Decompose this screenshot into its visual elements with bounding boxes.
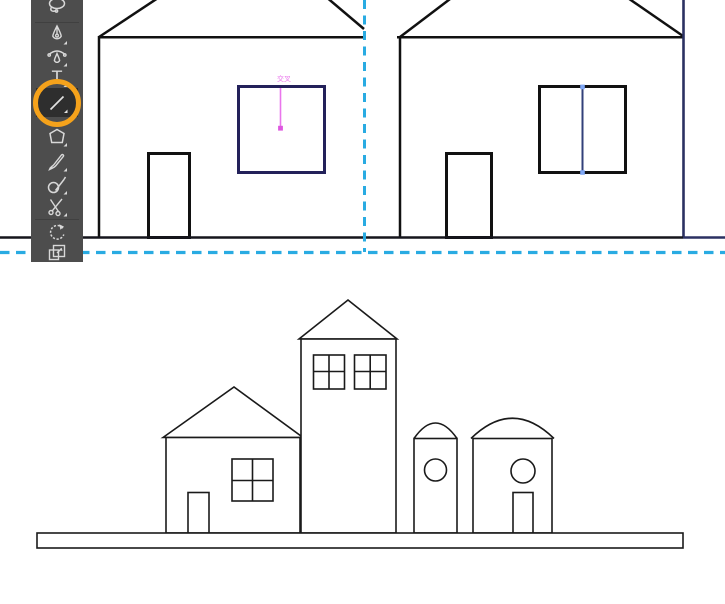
- rotate-tool[interactable]: [46, 222, 68, 244]
- silo-dome[interactable]: [414, 423, 457, 439]
- house-right-roof-slope-l[interactable]: [400, 0, 454, 37]
- tower-roof[interactable]: [299, 300, 397, 339]
- silo-body[interactable]: [414, 439, 457, 534]
- dome-house-round-window[interactable]: [511, 459, 535, 483]
- smart-guide-label: 交叉: [277, 74, 291, 83]
- base-platform[interactable]: [37, 533, 683, 548]
- illustrator-workspace: 交叉: [0, 0, 725, 604]
- anchor-dot-bottom: [580, 170, 585, 175]
- eraser-tool[interactable]: [46, 126, 68, 148]
- gable-house-roof[interactable]: [163, 387, 303, 438]
- paintbrush-tool[interactable]: [46, 151, 68, 173]
- toolbar-separator: [35, 219, 79, 220]
- house-left-door[interactable]: [149, 154, 190, 238]
- silo-round-window[interactable]: [425, 459, 447, 481]
- silo[interactable]: [414, 423, 457, 533]
- house-right-roof-slope-r[interactable]: [625, 0, 683, 36]
- tower[interactable]: [299, 300, 397, 533]
- house-right-door[interactable]: [447, 154, 492, 238]
- house-left-roof-slope-r[interactable]: [325, 0, 364, 29]
- gable-house[interactable]: [163, 387, 303, 533]
- artboard-tool[interactable]: [46, 242, 68, 262]
- toolbar: T: [31, 0, 83, 262]
- highlight-circle: [33, 79, 81, 127]
- dome-house-dome[interactable]: [471, 418, 554, 438]
- dome-house-door[interactable]: [513, 493, 533, 534]
- line-endpoint-dot: [278, 126, 283, 131]
- house-left-roof-slope-l[interactable]: [99, 0, 161, 37]
- town-illustration: [37, 300, 683, 548]
- curvature-tool[interactable]: [46, 46, 68, 68]
- toolbar-separator: [35, 22, 79, 23]
- dome-house[interactable]: [471, 418, 554, 533]
- house-right[interactable]: [397, 0, 683, 239]
- flyout-triangle: [64, 213, 68, 217]
- flyout-triangle: [64, 168, 68, 172]
- flyout-triangle: [64, 191, 68, 195]
- anchor-dot-top: [580, 85, 585, 90]
- flyout-triangle: [64, 143, 68, 147]
- gable-house-door[interactable]: [188, 493, 209, 534]
- lasso-tool[interactable]: [46, 0, 68, 19]
- blob-brush-tool[interactable]: [46, 174, 68, 196]
- flyout-triangle: [64, 41, 68, 45]
- pen-tool[interactable]: [46, 24, 68, 46]
- canvas-artwork: 交叉: [0, 0, 725, 604]
- scissors-tool[interactable]: [46, 196, 68, 218]
